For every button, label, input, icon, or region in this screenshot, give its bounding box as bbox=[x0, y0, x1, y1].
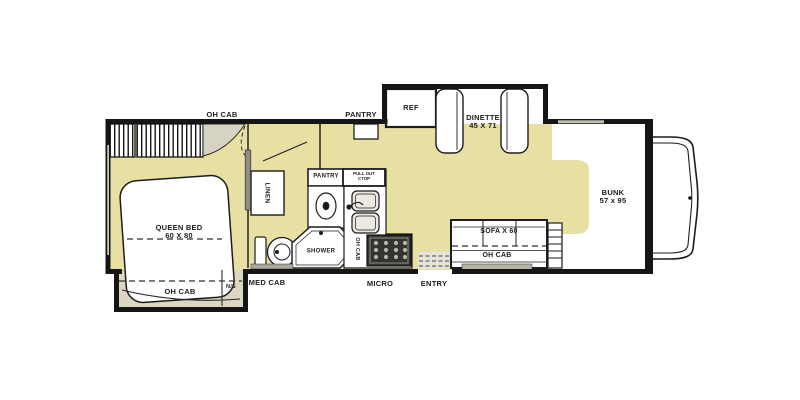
label-dinette: DINETTE 45 X 71 bbox=[466, 114, 500, 131]
bunk-size: 57 x 95 bbox=[600, 197, 627, 205]
label-bunk: BUNK 57 x 95 bbox=[600, 189, 627, 206]
label-night-stand: N/S bbox=[226, 284, 236, 290]
toilet bbox=[255, 237, 297, 268]
label-entry: ENTRY bbox=[421, 280, 447, 288]
label-shower: SHOWER bbox=[307, 249, 336, 256]
label-oh-cab-slide: OH CAB bbox=[164, 288, 195, 296]
label-pull-out-ctop: PULL OUT CTOP bbox=[353, 172, 375, 182]
rv-floorplan: OH CAB PANTRY REF DINETTE 45 X 71 BUNK 5… bbox=[0, 0, 800, 400]
med-cab-strip bbox=[251, 264, 293, 269]
label-pantry-top: PANTRY bbox=[345, 111, 377, 119]
label-oh-cab-kitchen: OH CAB bbox=[354, 237, 360, 260]
cab-front bbox=[653, 137, 698, 259]
label-queen-bed: QUEEN BED 60 X 80 bbox=[156, 224, 203, 241]
label-med-cab: MED CAB bbox=[249, 279, 286, 287]
label-micro: MICRO bbox=[367, 280, 393, 288]
pull-out-line2: CTOP bbox=[353, 177, 375, 182]
label-oh-cab-top: OH CAB bbox=[206, 111, 237, 119]
label-sofa: SOFA X 60 bbox=[480, 228, 517, 236]
label-linen: LINEN bbox=[263, 183, 270, 204]
floorplan-drawing bbox=[0, 0, 800, 400]
pantry-top-cabinet bbox=[354, 124, 378, 139]
label-oh-cab-sofa: OH CAB bbox=[482, 252, 511, 260]
dinette-size: 45 X 71 bbox=[466, 122, 500, 130]
stove bbox=[367, 235, 411, 266]
entry-steps bbox=[418, 252, 451, 269]
label-pantry-bath: PANTRY bbox=[313, 174, 339, 181]
queen-bed-size: 60 X 80 bbox=[156, 232, 203, 240]
label-ref: REF bbox=[403, 104, 419, 112]
bunk-steps bbox=[548, 223, 562, 268]
